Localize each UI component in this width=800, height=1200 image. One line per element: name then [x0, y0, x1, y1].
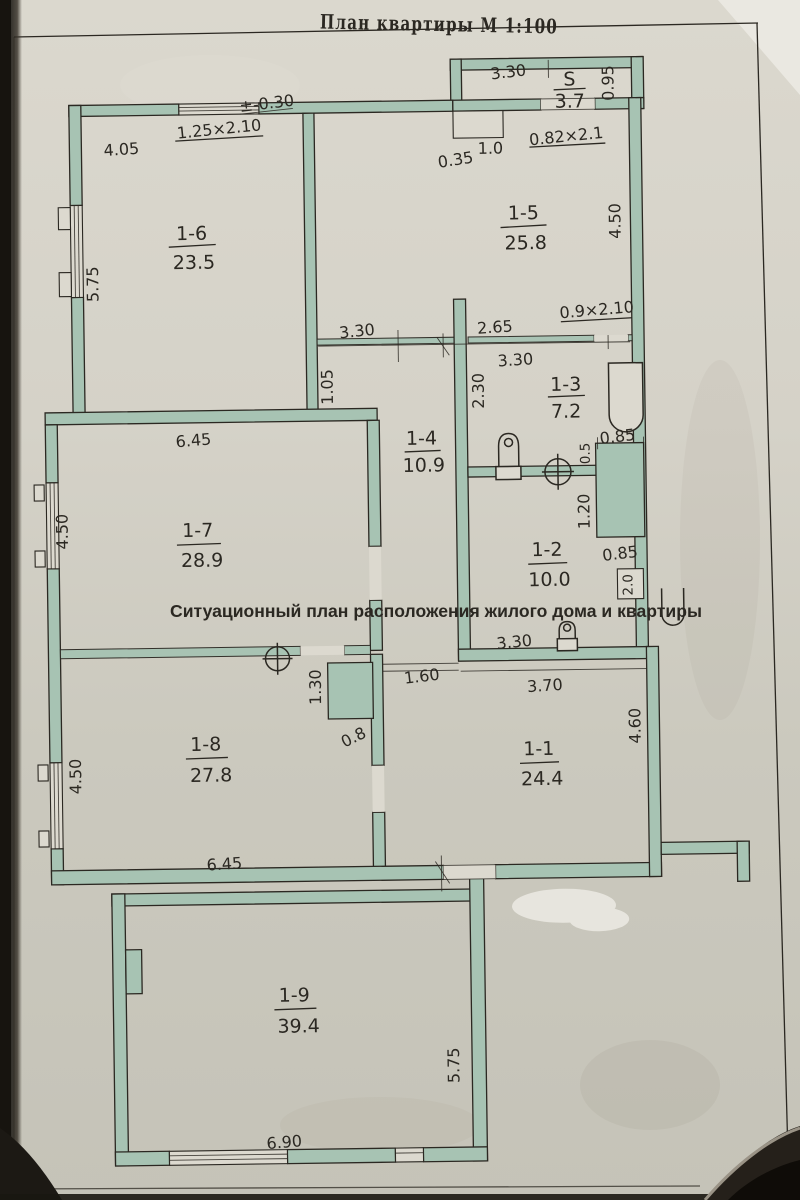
room-1-9-label: 1-9 — [279, 984, 310, 1006]
page-title: План квартиры М 1:100 — [320, 10, 558, 39]
room-1-9-area: 39.4 — [277, 1015, 320, 1038]
room-1-3-area: 7.2 — [551, 400, 582, 422]
room-1-7-label: 1-7 — [182, 520, 213, 542]
room-1-4-label: 1-4 — [406, 427, 437, 449]
room-1-1-label: 1-1 — [523, 738, 554, 760]
dim-duct-h: 1.20 — [574, 493, 593, 529]
room-1-6-area: 23.5 — [173, 252, 216, 275]
room-1-5-area: 25.8 — [504, 232, 547, 255]
room-s-label: S — [563, 68, 575, 90]
room-1-1-area: 24.4 — [521, 768, 564, 791]
dim-r12-w: 3.30 — [496, 631, 533, 654]
room-1-4-area: 10.9 — [403, 454, 446, 477]
dim-annex-notch-w: 1.0 — [478, 139, 504, 158]
dim-r17-width: 6.45 — [175, 429, 212, 451]
dim-r18-left: 4.50 — [66, 759, 85, 795]
dim-r15-right: 4.50 — [605, 203, 624, 239]
room-1-5-label: 1-5 — [508, 202, 539, 224]
dim-r11-w: 3.70 — [526, 675, 563, 696]
dim-annex-depth: 0.95 — [598, 65, 617, 101]
dim-duct2: 2.0 — [620, 574, 636, 596]
dim-r17-left: 4.50 — [52, 514, 71, 550]
dim-r18-width: 6.45 — [206, 853, 243, 874]
dim-hall-w: 1.05 — [317, 369, 336, 405]
dim-mid-left: 3.30 — [338, 320, 375, 343]
dim-duct-s: 0.5 — [578, 443, 594, 465]
dim-r19-width: 6.90 — [266, 1131, 303, 1153]
room-1-2-label: 1-2 — [531, 539, 562, 561]
floorplan-drawing: План квартиры М 1:100 — [0, 0, 800, 1200]
room-1-8-label: 1-8 — [190, 734, 221, 756]
room-1-7-area: 28.9 — [181, 549, 224, 572]
situational-caption: Ситуационный план расположения жилого до… — [170, 601, 702, 621]
dim-bath-w: 2.30 — [469, 373, 488, 409]
dim-r16-width: 4.05 — [103, 139, 140, 160]
dim-r16-left: 5.75 — [83, 266, 102, 302]
scanned-floorplan-page: План квартиры М 1:100 — [0, 0, 800, 1200]
dim-r19-right: 5.75 — [444, 1047, 463, 1083]
room-1-2-area: 10.0 — [528, 569, 571, 592]
dim-r11-right: 4.60 — [625, 708, 644, 744]
dim-mid-center: 2.65 — [476, 316, 513, 337]
dim-mid-right: 3.30 — [497, 349, 534, 370]
room-1-6-label: 1-6 — [176, 223, 207, 245]
room-1-3-label: 1-3 — [550, 373, 581, 395]
bathtub-icon — [608, 363, 643, 432]
room-1-8-area: 27.8 — [190, 764, 233, 787]
room-s-area: 3.7 — [555, 90, 586, 112]
dim-stove-w: 1.30 — [306, 669, 325, 705]
